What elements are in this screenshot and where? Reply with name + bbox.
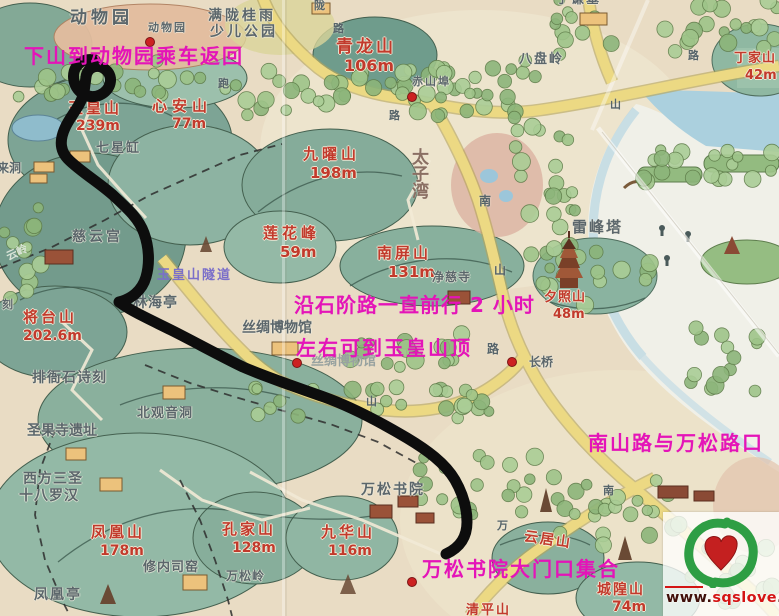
hand-drawn-tourist-map: 动物园动物园满陇桂雨少儿公园于谦墓八盘岭赤山埠青龙山106m丁家山42m玉皇山2… — [0, 0, 779, 616]
watermark-underline — [665, 586, 703, 588]
url-www: www. — [666, 590, 712, 606]
watermark-box: www.sqslove.cn — [663, 512, 779, 616]
sqslove-logo — [663, 512, 779, 588]
watermark-url[interactable]: www.sqslove.cn — [666, 590, 778, 606]
url-domain: sqslove — [712, 590, 777, 606]
